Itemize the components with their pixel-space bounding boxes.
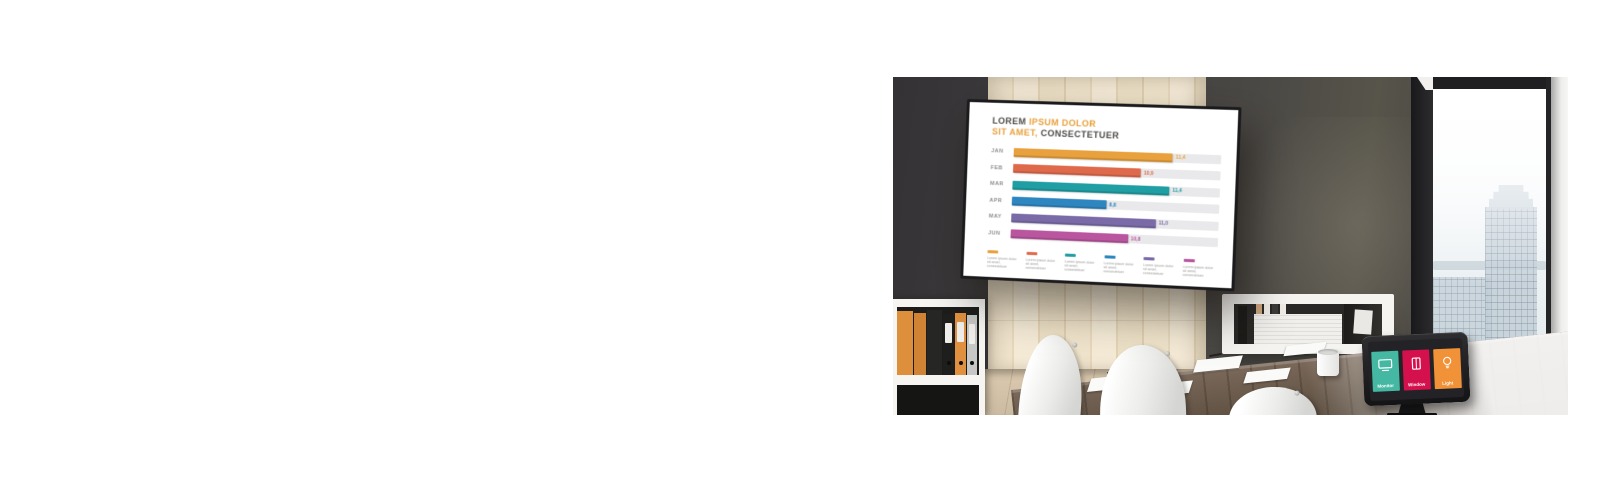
tablet-screen: Monitor Window Light (1368, 338, 1464, 401)
value-label: 10,8 (1131, 236, 1141, 242)
bar-fill: 10,8 (1010, 230, 1127, 244)
legend-label: Lorem ipsum dolor sit amet, consectetuer (987, 256, 1020, 270)
binder (927, 310, 942, 375)
legend-label: Lorem ipsum dolor sit amet, consectetuer (1064, 259, 1098, 273)
legend-swatch (1026, 252, 1037, 255)
legend-item: Lorem ipsum dolor sit amet, consectetuer (1143, 257, 1177, 277)
legend-swatch (1104, 255, 1115, 258)
window-icon (1407, 356, 1425, 371)
tablet-base (1387, 413, 1437, 415)
legend-item: Lorem ipsum dolor sit amet, consectetuer (1064, 254, 1098, 274)
bar-fill: 8,8 (1012, 197, 1107, 210)
legend-swatch (987, 250, 998, 253)
binder (943, 314, 954, 375)
binder (914, 313, 926, 375)
light-icon (1438, 355, 1456, 370)
binder (955, 313, 966, 375)
legend-label: Lorem ipsum dolor sit amet, consectetuer (1183, 264, 1217, 279)
title-part-dark: LOREM (992, 116, 1026, 127)
tile-monitor[interactable]: Monitor (1371, 350, 1400, 391)
legend-swatch (1065, 254, 1076, 257)
wall-display: LOREM IPSUM DOLOR SIT AMET, CONSECTETUER… (960, 99, 1241, 291)
legend: Lorem ipsum dolor sit amet, consectetuer… (987, 250, 1217, 279)
legend-item: Lorem ipsum dolor sit amet, consectetuer (1025, 252, 1059, 272)
title-part-accent: IPSUM DOLOR (1029, 117, 1096, 129)
monitor-icon (1376, 357, 1394, 372)
window-frame (1433, 77, 1546, 89)
bookshelf-cavity (897, 385, 979, 415)
tile-light[interactable]: Light (1433, 348, 1462, 389)
legend-item: Lorem ipsum dolor sit amet, consectetuer (1103, 255, 1137, 275)
tile-window[interactable]: Window (1402, 349, 1431, 390)
tile-label: Monitor (1372, 382, 1399, 388)
bar-fill: 10,9 (1013, 164, 1141, 178)
binder (967, 315, 977, 375)
chart-rows: JAN 11,4 FEB 10,9 MA (988, 143, 1222, 251)
month-label: FEB (991, 165, 1014, 172)
binder (897, 311, 913, 375)
value-label: 10,9 (1144, 170, 1154, 176)
bookshelf-cavity (897, 307, 979, 375)
month-label: JAN (991, 148, 1014, 155)
bar-chart: LOREM IPSUM DOLOR SIT AMET, CONSECTETUER… (963, 102, 1238, 288)
chart-title: LOREM IPSUM DOLOR SIT AMET, CONSECTETUER (992, 116, 1223, 144)
legend-item: Lorem ipsum dolor sit amet, consectetuer (1183, 259, 1218, 279)
coffee-mug (1317, 349, 1339, 376)
legend-swatch (1183, 259, 1194, 262)
legend-swatch (1143, 257, 1154, 260)
month-label: MAR (990, 181, 1013, 188)
month-label: JUN (988, 230, 1011, 237)
tile-label: Light (1434, 380, 1461, 386)
paper-sheet (1353, 309, 1373, 334)
title-part-dark: CONSECTETUER (1040, 128, 1119, 141)
meeting-room-photo: LOREM IPSUM DOLOR SIT AMET, CONSECTETUER… (893, 77, 1568, 415)
legend-label: Lorem ipsum dolor sit amet, consectetuer (1103, 261, 1137, 275)
paper-stack (1254, 314, 1342, 344)
legend-item: Lorem ipsum dolor sit amet, consectetuer (987, 250, 1020, 270)
value-label: 11,4 (1176, 155, 1186, 161)
chair-hinge (1294, 391, 1299, 396)
bookshelf (893, 299, 985, 415)
tile-label: Window (1403, 381, 1430, 387)
title-part-accent: SIT AMET, (992, 126, 1038, 137)
legend-label: Lorem ipsum dolor sit amet, consectetuer (1025, 257, 1058, 271)
control-tablet: Monitor Window Light (1362, 332, 1471, 407)
value-label: 11,4 (1172, 188, 1182, 194)
value-label: 8,8 (1109, 202, 1116, 208)
binder (1238, 306, 1247, 344)
legend-label: Lorem ipsum dolor sit amet, consectetuer (1143, 263, 1177, 277)
month-label: MAY (989, 214, 1012, 221)
value-label: 11,0 (1158, 221, 1168, 227)
sideboard-cavity (1234, 304, 1382, 344)
bar-fill: 11,4 (1014, 148, 1173, 163)
month-label: APR (989, 197, 1012, 204)
